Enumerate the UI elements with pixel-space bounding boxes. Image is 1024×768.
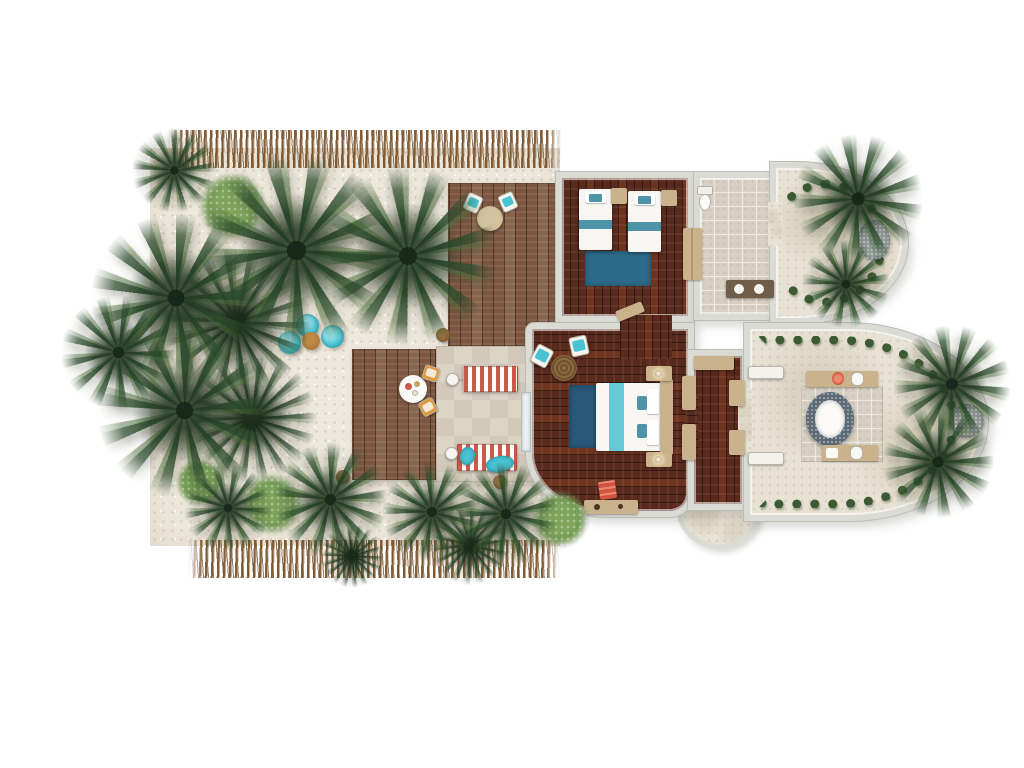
wardrobe xyxy=(729,380,745,406)
bed-runner xyxy=(609,383,624,451)
king-headboard xyxy=(660,379,673,455)
pillow xyxy=(647,389,659,414)
twin-nightstand-1 xyxy=(611,188,627,204)
door-twin-to-master xyxy=(620,315,672,359)
chair-cushion xyxy=(535,348,550,362)
toilet xyxy=(697,186,713,212)
twin-room-rug xyxy=(585,251,651,286)
side-table xyxy=(446,373,459,386)
sink xyxy=(850,446,863,460)
chair-cushion xyxy=(572,339,585,352)
plate xyxy=(414,381,420,387)
teal-cushion xyxy=(589,194,602,202)
sink xyxy=(734,284,744,294)
twin-nightstand-2 xyxy=(661,190,677,206)
wardrobe xyxy=(682,376,696,410)
twin-bed-1 xyxy=(579,189,612,250)
flower-pot xyxy=(832,372,844,385)
king-bed xyxy=(596,383,662,451)
towel-shelf xyxy=(748,366,784,379)
toilet-bowl xyxy=(699,194,711,211)
bath-vanity-bottom xyxy=(822,445,878,461)
lamp xyxy=(655,370,662,377)
lamp xyxy=(655,456,662,463)
sink xyxy=(754,284,764,294)
rattan-side-table xyxy=(551,355,577,381)
towel-shelf xyxy=(748,452,784,465)
twin-wardrobe xyxy=(683,228,702,280)
sink xyxy=(851,372,864,386)
dining-table xyxy=(399,375,427,403)
bed-runner xyxy=(579,220,612,229)
bath-vanity-top xyxy=(806,371,878,387)
floor-plan-render xyxy=(0,0,1024,768)
bathtub xyxy=(806,392,854,446)
teal-cushion xyxy=(637,424,647,438)
twin-vanity xyxy=(726,280,774,298)
wardrobe xyxy=(729,430,745,455)
towel xyxy=(826,448,838,458)
chair-cushion xyxy=(501,195,514,207)
teal-cushion xyxy=(638,196,651,204)
corridor-console xyxy=(694,356,734,370)
bathtub-basin xyxy=(815,400,845,438)
red-towel xyxy=(598,480,617,500)
wardrobe xyxy=(682,424,696,460)
plate xyxy=(412,390,418,396)
master-console xyxy=(584,500,638,514)
side-table xyxy=(445,447,458,460)
chair-cushion xyxy=(422,401,434,413)
master-nightstand-2 xyxy=(646,452,672,467)
twin-bed-2 xyxy=(628,191,661,252)
console-item xyxy=(618,504,623,509)
master-nightstand-1 xyxy=(646,366,672,381)
console-item xyxy=(594,504,600,510)
glass-door-patio xyxy=(521,392,531,452)
teal-cushion xyxy=(637,396,647,410)
chair-cushion xyxy=(425,368,437,378)
plate xyxy=(405,383,412,390)
master-chair-2 xyxy=(568,334,590,357)
bed-runner xyxy=(628,222,661,231)
pillow xyxy=(647,420,659,445)
sun-lounger-1 xyxy=(463,366,518,392)
master-rug xyxy=(569,385,598,448)
thatch-fence-top xyxy=(168,130,562,168)
